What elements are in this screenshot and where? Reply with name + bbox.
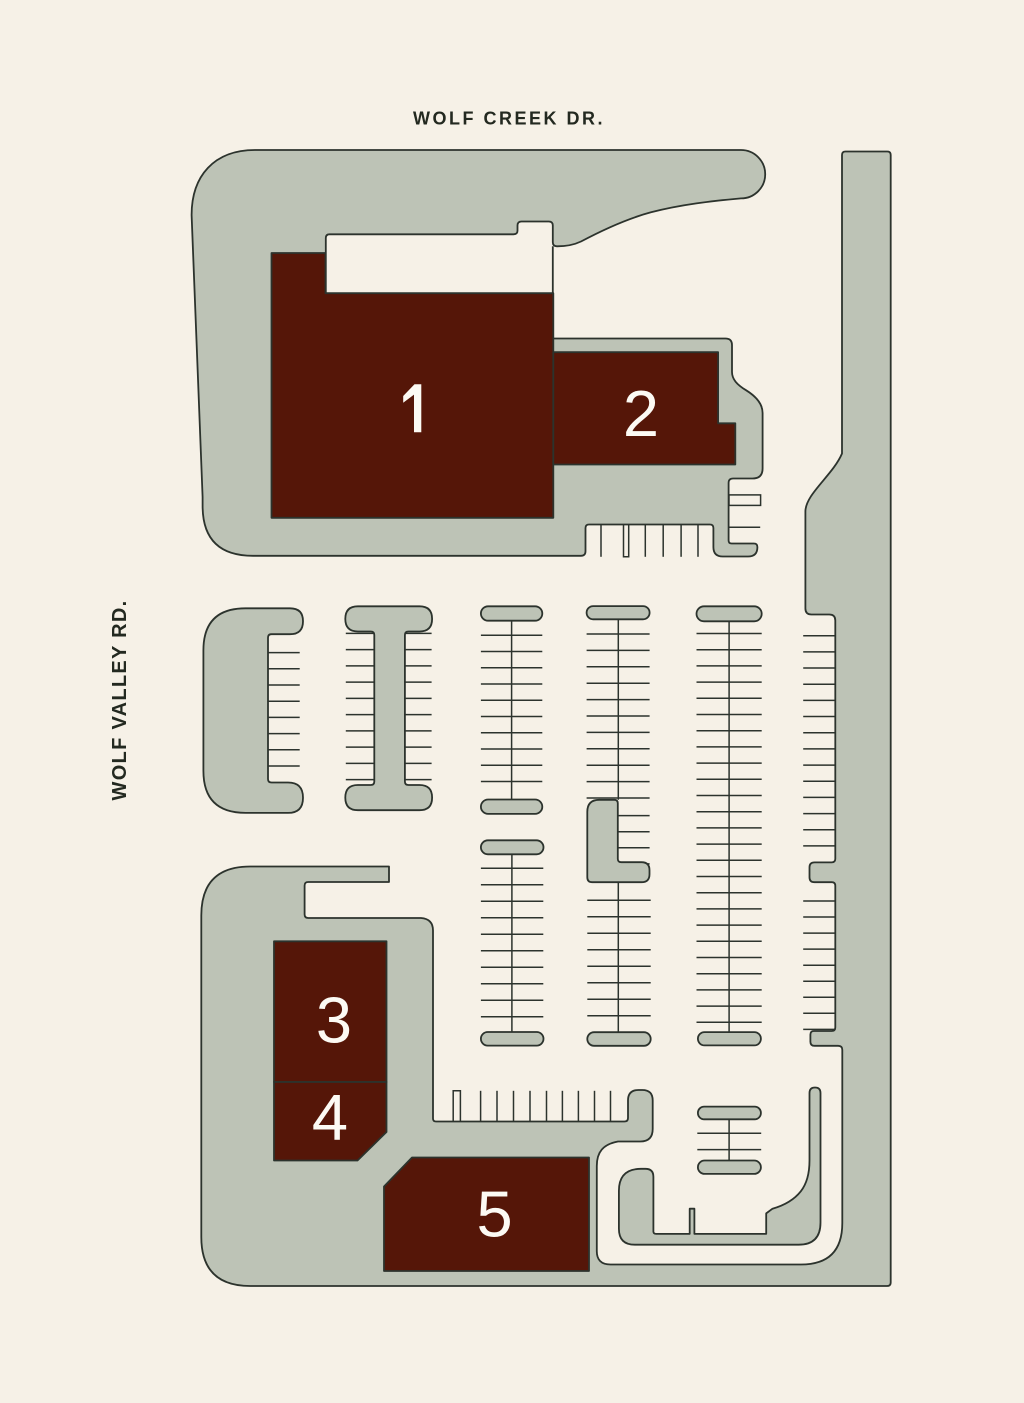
svg-text:5: 5 <box>477 1178 513 1251</box>
svg-text:4: 4 <box>312 1081 348 1154</box>
svg-text:WOLF VALLEY RD.: WOLF VALLEY RD. <box>109 600 131 801</box>
svg-text:2: 2 <box>623 377 659 450</box>
svg-text:WOLF CREEK DR.: WOLF CREEK DR. <box>413 109 605 129</box>
svg-text:3: 3 <box>316 984 352 1057</box>
